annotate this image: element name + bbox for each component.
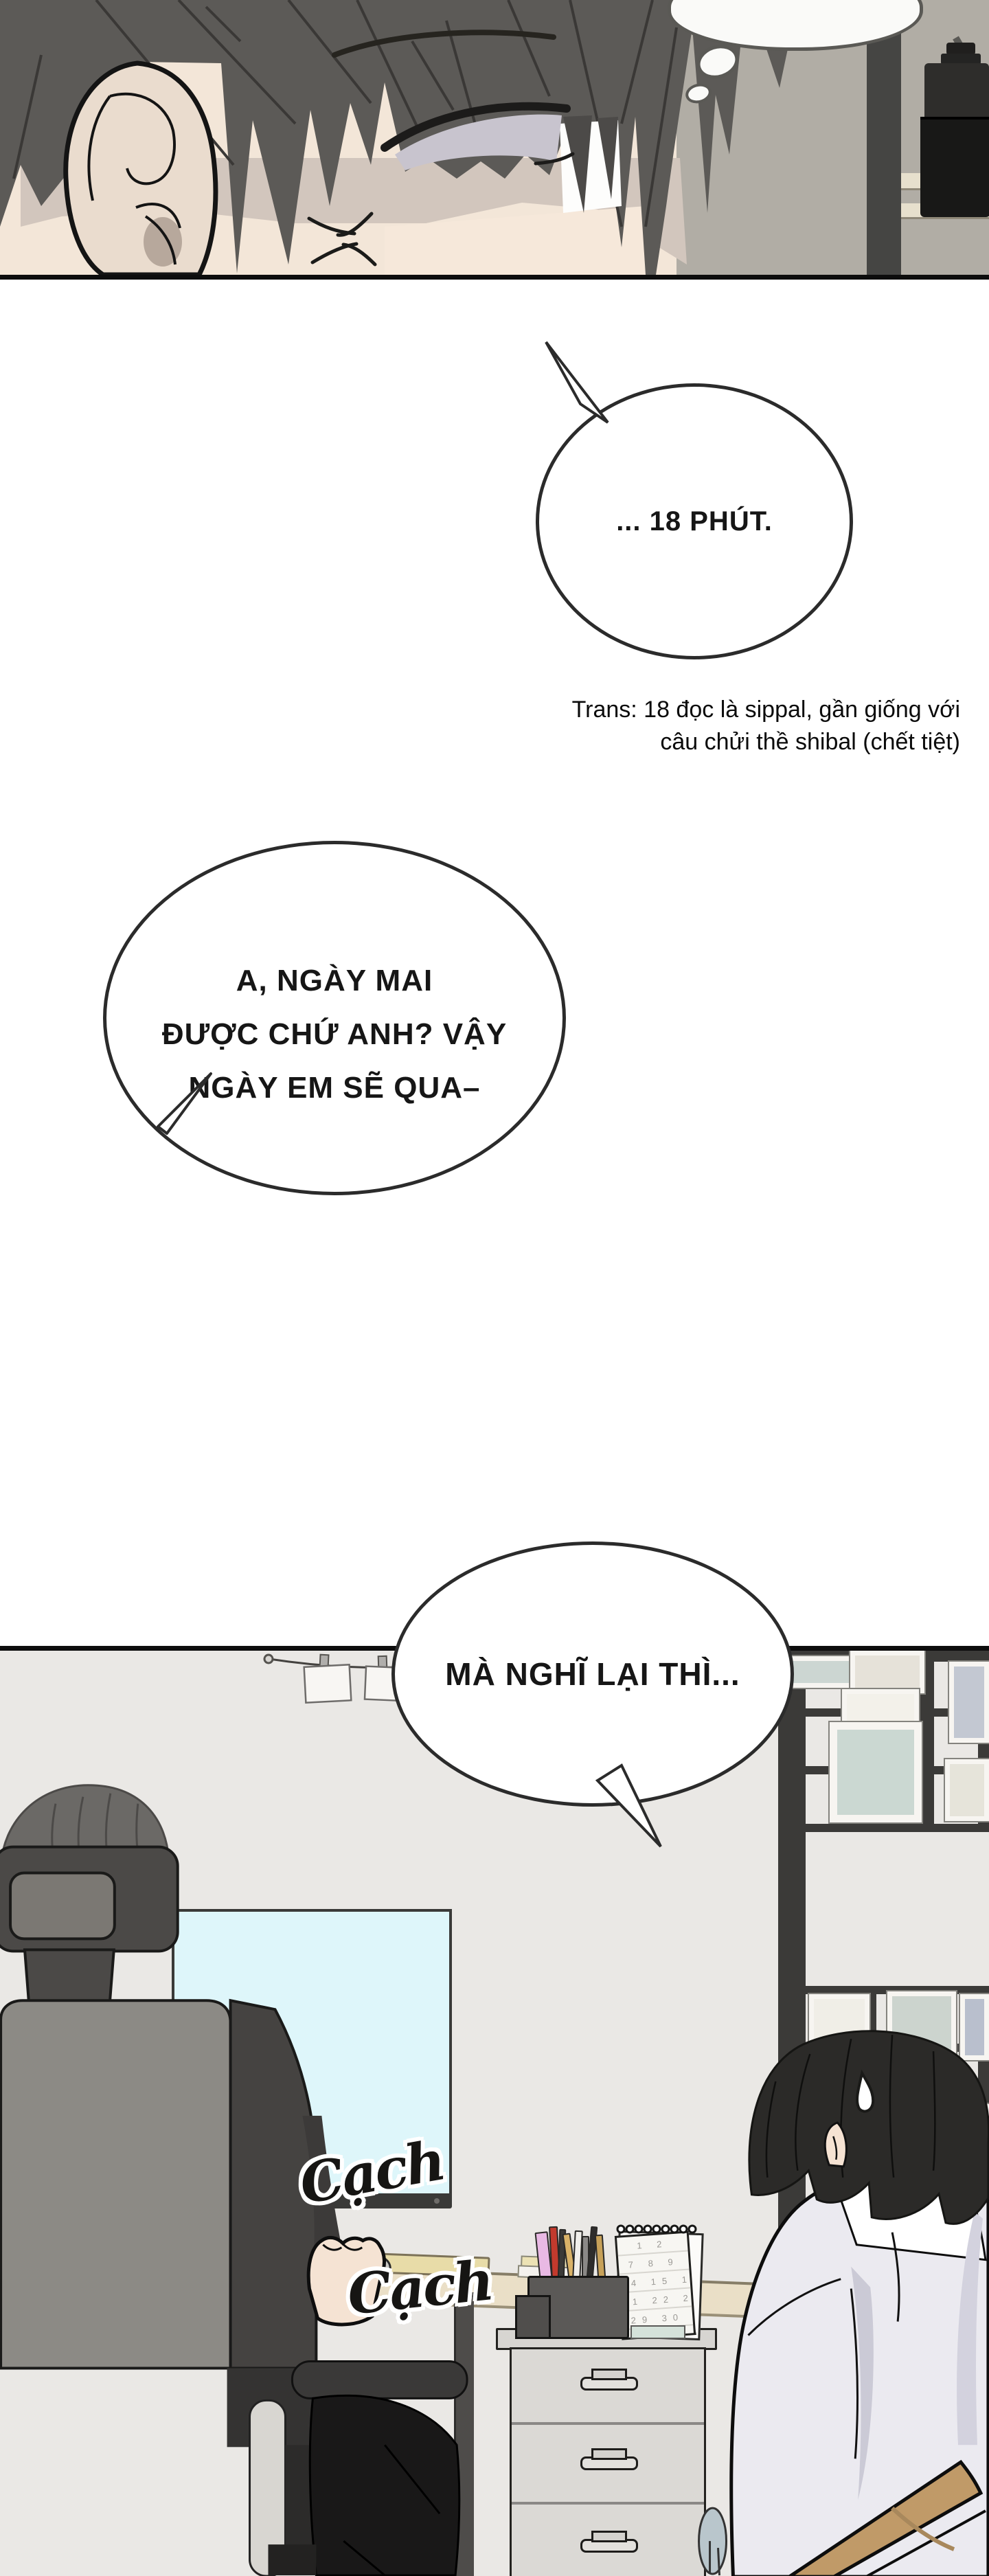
speech-bubble-2-tail bbox=[124, 1058, 261, 1195]
person-right-hair bbox=[749, 2031, 989, 2224]
speech-bubble-1-tail bbox=[529, 330, 632, 433]
chair-leg bbox=[699, 2508, 727, 2574]
speech-bubble-3-tail bbox=[584, 1745, 701, 1889]
panel-face-closeup bbox=[0, 0, 989, 280]
speech-line: ĐƯỢC CHỨ ANH? VẬY bbox=[162, 1017, 507, 1051]
translator-note: Trans: 18 đọc là sippal, gần giống với c… bbox=[572, 694, 960, 758]
ear bbox=[66, 63, 216, 275]
comic-page: ... 18 PHÚT. Trans: 18 đọc là sippal, gầ… bbox=[0, 0, 989, 2576]
translator-note-line: câu chửi thề shibal (chết tiệt) bbox=[660, 729, 960, 755]
calendar-spiral bbox=[615, 2224, 698, 2235]
translator-note-line: Trans: 18 đọc là sippal, gần giống với bbox=[572, 697, 960, 723]
speech-line: A, NGÀY MAI bbox=[236, 964, 433, 997]
speech-bubble-3-text: MÀ NGHĨ LẠI THÌ... bbox=[445, 1656, 740, 1693]
speech-bubble-1-text: ... 18 PHÚT. bbox=[616, 506, 773, 537]
mint-tray bbox=[630, 2325, 685, 2339]
pen-holder-step bbox=[515, 2295, 551, 2339]
